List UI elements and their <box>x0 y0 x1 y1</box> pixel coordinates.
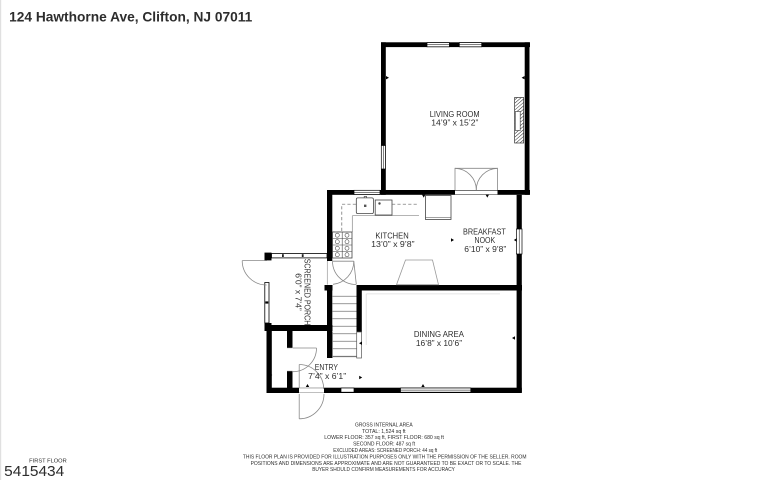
svg-text:GROSS INTERNAL AREA: GROSS INTERNAL AREA <box>355 422 413 428</box>
svg-text:EXCLUDED AREAS: SCREENED PORCH: EXCLUDED AREAS: SCREENED PORCH: 44 sq ft <box>333 448 437 454</box>
svg-text:14’9” x 15’2”: 14’9” x 15’2” <box>431 119 478 128</box>
svg-text:BREAKFAST: BREAKFAST <box>463 227 506 236</box>
svg-text:THIS FLOOR PLAN IS PROVIDED FO: THIS FLOOR PLAN IS PROVIDED FOR ILLUSTRA… <box>243 454 527 460</box>
svg-text:16’8” x 10’6”: 16’8” x 10’6” <box>416 339 462 348</box>
svg-text:ENTRY: ENTRY <box>315 363 339 372</box>
svg-text:DINING AREA: DINING AREA <box>414 330 465 339</box>
svg-text:SECOND FLOOR: 487 sq ft: SECOND FLOOR: 487 sq ft <box>353 442 415 448</box>
svg-text:5415434: 5415434 <box>4 463 64 480</box>
svg-text:POSITIONS AND DIMENSIONS ARE A: POSITIONS AND DIMENSIONS ARE APPROXIMATE… <box>251 461 522 467</box>
svg-text:7’4” x 6’1”: 7’4” x 6’1” <box>308 372 346 381</box>
svg-text:6’0” x 7’4”: 6’0” x 7’4” <box>293 273 302 311</box>
svg-text:LIVING ROOM: LIVING ROOM <box>430 110 480 119</box>
svg-text:SCREENED PORCH: SCREENED PORCH <box>303 259 312 326</box>
svg-text:LOWER FLOOR: 357 sq ft, FIRST: LOWER FLOOR: 357 sq ft, FIRST FLOOR: 680… <box>324 435 444 441</box>
svg-text:6’10” x 9’8”: 6’10” x 9’8” <box>464 245 506 254</box>
svg-text:NOOK: NOOK <box>475 236 496 245</box>
svg-text:KITCHEN: KITCHEN <box>375 231 408 240</box>
svg-text:TOTAL: 1,524 sq ft: TOTAL: 1,524 sq ft <box>362 429 406 435</box>
svg-text:13’0” x 9’8”: 13’0” x 9’8” <box>371 240 415 249</box>
svg-text:124 Hawthorne Ave, Clifton, NJ: 124 Hawthorne Ave, Clifton, NJ 07011 <box>9 8 252 24</box>
svg-text:BUYER SHOULD CONFIRM MEASUREME: BUYER SHOULD CONFIRM MEASUREMENTS FOR AC… <box>312 467 455 473</box>
